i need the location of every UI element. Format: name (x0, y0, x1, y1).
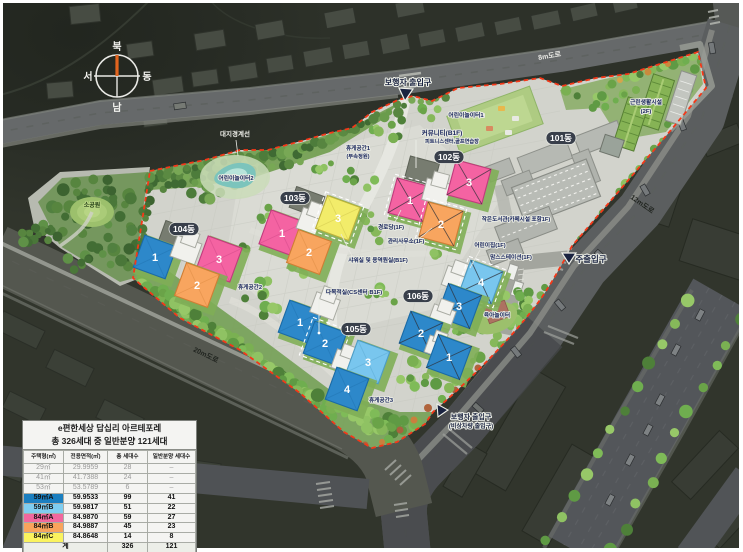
svg-text:105동: 105동 (345, 324, 367, 334)
svg-text:휴게공간2: 휴게공간2 (238, 283, 262, 291)
svg-text:106동: 106동 (407, 291, 429, 301)
svg-text:4: 4 (344, 384, 351, 396)
svg-text:커뮤니티(B1F): 커뮤니티(B1F) (422, 128, 463, 137)
svg-text:보행자 출입구: 보행자 출입구 (451, 412, 492, 421)
svg-text:주출입구: 주출입구 (575, 254, 606, 264)
svg-text:1: 1 (279, 228, 285, 240)
svg-text:작은도서관(카페시설 포함1F): 작은도서관(카페시설 포함1F) (482, 215, 551, 223)
svg-text:(2F): (2F) (641, 109, 652, 115)
svg-text:2: 2 (306, 247, 312, 259)
svg-text:3: 3 (216, 254, 222, 266)
svg-text:1: 1 (407, 195, 413, 207)
svg-text:어린이놀이터2: 어린이놀이터2 (218, 174, 253, 182)
svg-text:4: 4 (478, 277, 485, 289)
svg-text:2: 2 (322, 338, 328, 350)
svg-text:3: 3 (456, 301, 462, 313)
svg-text:휴게공간3: 휴게공간3 (369, 396, 393, 404)
svg-text:(부속정원): (부속정원) (346, 152, 369, 160)
svg-text:2: 2 (194, 280, 200, 292)
svg-text:대지경계선: 대지경계선 (220, 129, 250, 138)
svg-text:남: 남 (112, 101, 122, 114)
svg-text:피트니스센터,골프연습장: 피트니스센터,골프연습장 (425, 137, 479, 145)
svg-text:동: 동 (142, 71, 151, 83)
svg-text:1: 1 (297, 317, 303, 329)
svg-text:소공원: 소공원 (84, 201, 101, 209)
svg-text:(비상차량 출입구): (비상차량 출입구) (449, 422, 493, 430)
svg-text:103동: 103동 (284, 193, 306, 203)
svg-text:3: 3 (335, 213, 341, 225)
svg-text:2: 2 (438, 219, 444, 231)
svg-text:1: 1 (446, 352, 452, 364)
svg-text:서: 서 (83, 70, 92, 83)
svg-text:다목적실(CS센터 B1F): 다목적실(CS센터 B1F) (326, 288, 383, 296)
svg-text:근린생활시설: 근린생활시설 (630, 98, 662, 106)
svg-text:경로당(1F): 경로당(1F) (378, 223, 404, 231)
svg-text:보행자 출입구: 보행자 출입구 (385, 77, 432, 87)
svg-text:1: 1 (152, 252, 158, 264)
svg-text:3: 3 (466, 177, 472, 189)
svg-text:3: 3 (365, 357, 371, 369)
svg-text:북: 북 (112, 41, 121, 53)
svg-text:휴게공간1: 휴게공간1 (346, 144, 370, 152)
svg-text:104동: 104동 (173, 224, 195, 234)
svg-text:관리사무소(1F): 관리사무소(1F) (388, 237, 425, 245)
svg-text:102동: 102동 (438, 152, 460, 162)
svg-text:맘스스테이션(1F): 맘스스테이션(1F) (490, 253, 532, 261)
svg-text:어린이놀이터1: 어린이놀이터1 (448, 111, 484, 119)
svg-text:샤워실 및 용역원실(B1F): 샤워실 및 용역원실(B1F) (348, 256, 408, 264)
svg-text:101동: 101동 (550, 133, 572, 143)
svg-text:어린이집(1F): 어린이집(1F) (474, 241, 505, 249)
svg-text:육아놀이터: 육아놀이터 (484, 311, 510, 319)
svg-text:2: 2 (418, 328, 424, 340)
